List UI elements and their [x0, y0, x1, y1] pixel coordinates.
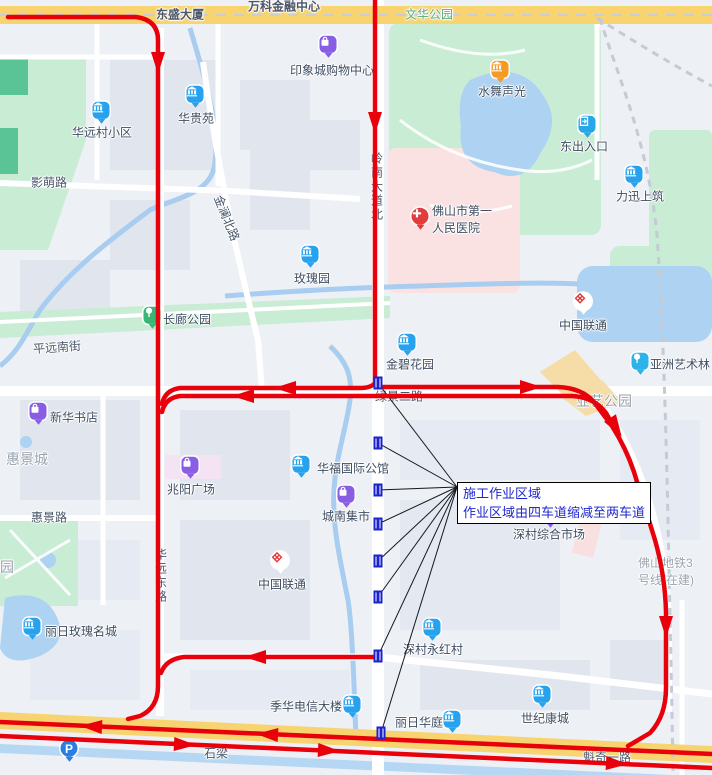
huaguiyuan-label[interactable]: 华贵苑	[178, 110, 214, 127]
label-yayi-park: 亚艺公园	[576, 391, 632, 411]
china-unicom-north-icon[interactable]	[575, 293, 592, 310]
label-park-partial: 园	[0, 557, 14, 577]
changlang-park-label[interactable]: 长廊公园	[163, 311, 211, 328]
huayuancun-residential-icon[interactable]	[93, 102, 110, 119]
map-canvas[interactable]: 东盛大厦万科金融中心文华公园影萌路金澜北路岭南大道北平远南街惠景城亚艺公园绿景二…	[0, 0, 712, 775]
shiji-kangcheng-label[interactable]: 世纪康城	[521, 710, 569, 727]
liri-rose-city-icon[interactable]	[24, 618, 41, 635]
lixun-shangzhu-icon[interactable]	[626, 166, 643, 183]
chengnan-market-icon[interactable]	[338, 486, 355, 503]
xinhua-bookstore-label[interactable]: 新华书店	[50, 409, 98, 426]
construction-callout: 施工作业区域 作业区域由四车道缩减至两车道	[457, 482, 651, 524]
china-unicom-south-label[interactable]: 中国联通	[258, 576, 306, 593]
huaguiyuan-icon[interactable]	[187, 86, 204, 103]
label-lingnan-avenue-north: 岭南大道北	[369, 152, 386, 222]
lixun-shangzhu-label[interactable]: 力迅上筑	[616, 188, 664, 205]
shencun-comprehensive-market-label[interactable]: 深村综合市场	[513, 526, 585, 543]
shuiwu-shengguang-label[interactable]: 水舞声光	[478, 83, 526, 100]
label-jinlan-north-road: 金澜北路	[210, 193, 244, 244]
jihua-telecom-building-label[interactable]: 季华电信大楼	[270, 698, 342, 715]
label-wenhua-park: 文华公园	[405, 6, 453, 23]
east-entrance-icon[interactable]	[579, 116, 596, 133]
label-dongsheng-building: 东盛大厦	[156, 6, 204, 23]
changlang-park-icon[interactable]	[144, 307, 161, 324]
yinxiangcheng-shopping-center-icon[interactable]	[320, 36, 337, 53]
jinbi-garden-icon[interactable]	[399, 334, 416, 351]
meiguiyuan-label[interactable]: 玫瑰园	[294, 270, 330, 287]
label-yingmeng-road: 影萌路	[31, 174, 67, 191]
huayuancun-residential-label[interactable]: 华远村小区	[72, 124, 132, 141]
east-entrance-label[interactable]: 东出入口	[560, 138, 608, 155]
huafu-international-mansion-icon[interactable]	[293, 456, 310, 473]
jinbi-garden-label[interactable]: 金碧花园	[386, 356, 434, 373]
shiji-kangcheng-icon[interactable]	[534, 686, 551, 703]
label-huijing-road: 惠景路	[31, 509, 67, 526]
liri-huating-label[interactable]: 丽日华庭	[395, 714, 443, 731]
meiguiyuan-icon[interactable]	[302, 246, 319, 263]
chengnan-market-label[interactable]: 城南集市	[322, 508, 370, 525]
label-huijing-city: 惠景城	[6, 449, 48, 469]
jihua-telecom-building-icon[interactable]	[344, 696, 361, 713]
zhaoyang-plaza-icon[interactable]	[182, 457, 199, 474]
asian-art-forest-icon[interactable]	[632, 353, 649, 370]
label-kuiqi-1st-road: 魁奇一路	[583, 749, 631, 766]
label-metro-line-3: 佛山地铁3号线(在建)	[638, 554, 694, 588]
label-lvjing-2nd-road: 绿景二路	[375, 388, 423, 405]
label-pingyuan-south-street: 平远南街	[32, 337, 81, 357]
foshan-first-peoples-hospital-icon[interactable]	[412, 208, 429, 225]
label-wanke-financial-center: 万科金融中心	[248, 0, 320, 15]
shuiwu-shengguang-icon[interactable]	[492, 61, 509, 78]
parking-icon[interactable]: P	[61, 740, 78, 757]
asian-art-forest-label[interactable]: 亚洲艺术林	[650, 356, 710, 373]
labels-layer: 东盛大厦万科金融中心文华公园影萌路金澜北路岭南大道北平远南街惠景城亚艺公园绿景二…	[0, 0, 712, 775]
liri-huating-icon[interactable]	[444, 711, 461, 728]
callout-line-2: 作业区域由四车道缩减至两车道	[463, 503, 645, 522]
liri-rose-city-label[interactable]: 丽日玫瑰名城	[45, 623, 117, 640]
shencun-yonghong-village-label[interactable]: 深村永红村	[403, 641, 463, 658]
huafu-international-mansion-label[interactable]: 华福国际公馆	[317, 460, 389, 477]
china-unicom-north-label[interactable]: 中国联通	[559, 317, 607, 334]
label-shiliang: 石梁	[204, 745, 228, 762]
label-huayuan-east-road: 华远东路	[153, 548, 170, 604]
zhaoyang-plaza-label[interactable]: 兆阳广场	[167, 481, 215, 498]
yinxiangcheng-shopping-center-label[interactable]: 印象城购物中心	[290, 62, 374, 79]
xinhua-bookstore-icon[interactable]	[30, 403, 47, 420]
callout-line-1: 施工作业区域	[463, 484, 645, 503]
china-unicom-south-icon[interactable]	[272, 552, 289, 569]
foshan-first-peoples-hospital-label[interactable]: 佛山市第一人民医院	[432, 202, 492, 236]
shencun-yonghong-village-icon[interactable]	[424, 619, 441, 636]
